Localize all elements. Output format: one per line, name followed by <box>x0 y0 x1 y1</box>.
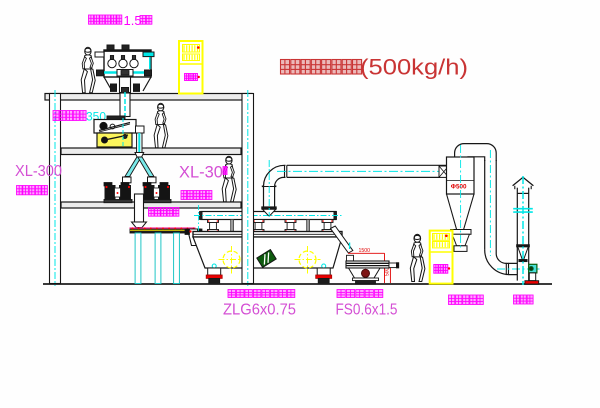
svg-text:FS0.6x1.5: FS0.6x1.5 <box>336 302 398 319</box>
svg-text:1.5: 1.5 <box>124 13 142 28</box>
svg-text:500: 500 <box>385 267 391 276</box>
svg-text:XL-300: XL-300 <box>15 163 62 180</box>
svg-text:1500: 1500 <box>359 248 371 254</box>
svg-text:Φ500: Φ500 <box>451 184 467 191</box>
svg-text:ZLG6x0.75: ZLG6x0.75 <box>223 302 296 319</box>
svg-text:(500kg/h): (500kg/h) <box>360 55 468 80</box>
